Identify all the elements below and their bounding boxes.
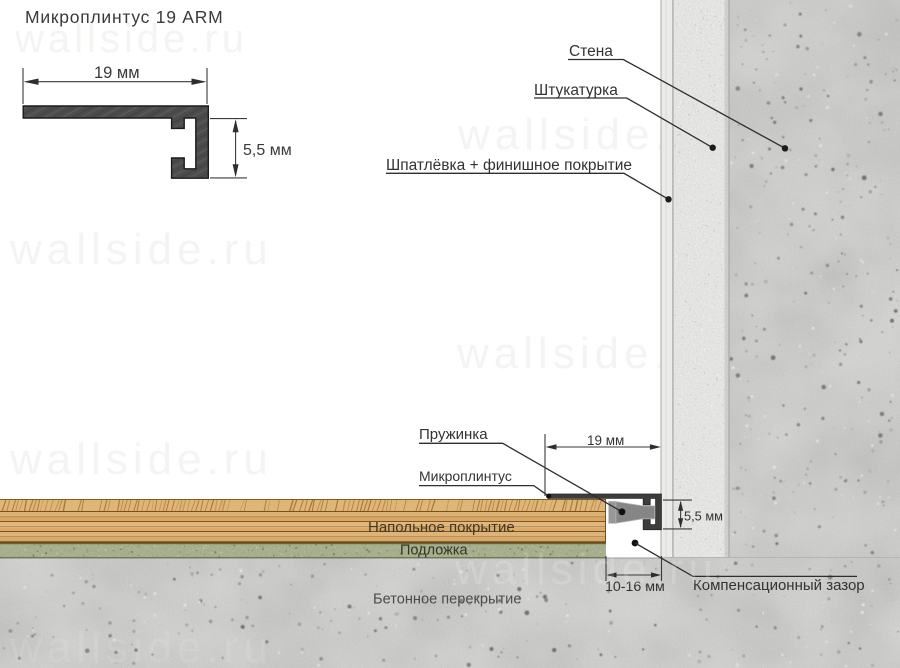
- svg-text:Штукатурка: Штукатурка: [534, 82, 618, 99]
- svg-text:Напольное покрытие: Напольное покрытие: [368, 519, 515, 536]
- svg-text:19 мм: 19 мм: [587, 433, 624, 448]
- svg-text:wallside.ru: wallside.ru: [9, 435, 273, 484]
- svg-text:Пружинка: Пружинка: [419, 426, 488, 443]
- svg-text:Компенсационный зазор: Компенсационный зазор: [693, 577, 865, 594]
- svg-text:Стена: Стена: [569, 43, 613, 60]
- svg-text:Микроплинтус: Микроплинтус: [419, 468, 512, 484]
- svg-text:Шпатлёвка + финишное покрытие: Шпатлёвка + финишное покрытие: [386, 157, 632, 174]
- svg-text:wallside.ru: wallside.ru: [9, 623, 273, 668]
- svg-text:wallside.ru: wallside.ru: [9, 225, 273, 274]
- svg-text:5,5 мм: 5,5 мм: [243, 142, 292, 159]
- svg-text:wallside.ru: wallside.ru: [454, 545, 718, 594]
- svg-text:19 мм: 19 мм: [94, 64, 140, 82]
- svg-text:5,5 мм: 5,5 мм: [684, 509, 723, 524]
- svg-text:Микроплинтус 19 ARM: Микроплинтус 19 ARM: [25, 7, 223, 27]
